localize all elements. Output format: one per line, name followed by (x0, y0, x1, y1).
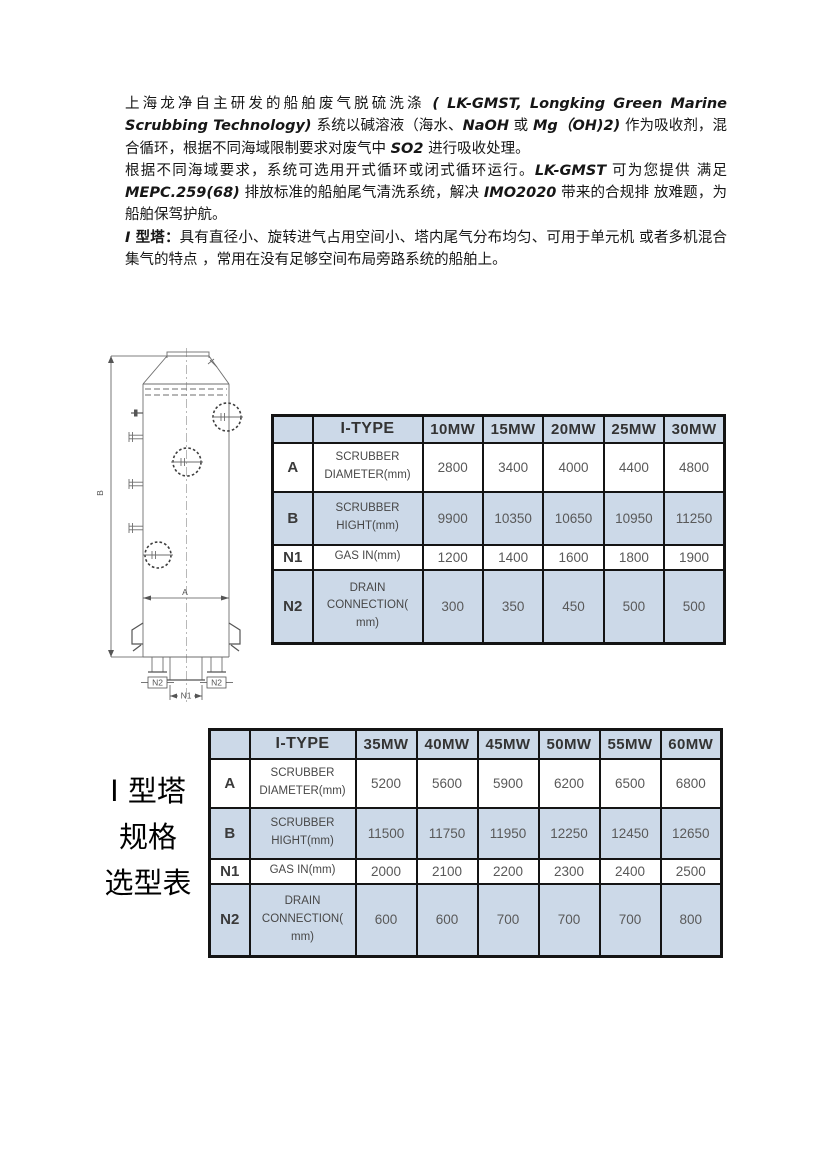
cell-value: 2200 (478, 859, 539, 884)
cell-value: 11500 (356, 808, 417, 859)
column-header-10mw: 10MW (423, 416, 483, 443)
corner-cell (273, 416, 313, 443)
spec-table-10-30mw: I-TYPE10MW15MW20MW25MW30MWASCRUBBER DIAM… (271, 414, 726, 645)
text-run: 型塔： (130, 230, 179, 246)
table-row-n1: N1GAS IN(mm)12001400160018001900 (273, 545, 725, 570)
cell-value: 6200 (539, 759, 600, 808)
text-run: 具有直径小、旋转进气占用空间小、塔内尾气分布均匀、可用于单元机 或者多机混合集气… (125, 230, 727, 268)
table-row-n2: N2DRAIN CONNECTION( mm)60060070070070080… (210, 884, 722, 957)
cell-value: 10650 (543, 492, 603, 545)
cell-value: 450 (543, 570, 603, 644)
row-label: N1 (210, 859, 250, 884)
cell-value: 1600 (543, 545, 603, 570)
cell-value: 1900 (664, 545, 724, 570)
cell-value: 10950 (604, 492, 664, 545)
cell-value: 2500 (661, 859, 722, 884)
document-page: 上海龙净自主研发的船舶废气脱硫洗涤 ( LK-GMST, Longking Gr… (0, 0, 830, 1174)
text-run: 排放标准的船舶尾气清洗系统，解决 (240, 185, 484, 201)
cell-value: 700 (600, 884, 661, 957)
cell-value: 12450 (600, 808, 661, 859)
nozzle-label-n1: N1 (181, 691, 192, 701)
section-title-line: 规格 (94, 814, 202, 860)
cell-value: 12650 (661, 808, 722, 859)
text-run: Mg（OH)2) (533, 118, 620, 134)
column-header-60mw: 60MW (661, 730, 722, 759)
column-header-15mw: 15MW (483, 416, 543, 443)
spec-table-35-60mw: I-TYPE35MW40MW45MW50MW55MW60MWASCRUBBER … (208, 728, 723, 958)
text-run: 可为您提供 满足 (606, 163, 727, 179)
cell-value: 1800 (604, 545, 664, 570)
section-title-line: I 型塔 (94, 768, 202, 814)
column-header-30mw: 30MW (664, 416, 724, 443)
cell-value: 12250 (539, 808, 600, 859)
row-name: SCRUBBER DIAMETER(mm) (313, 443, 423, 492)
cell-value: 4000 (543, 443, 603, 492)
column-header-50mw: 50MW (539, 730, 600, 759)
cell-value: 10350 (483, 492, 543, 545)
row-label: N2 (273, 570, 313, 644)
row-label: A (273, 443, 313, 492)
table-row-n2: N2DRAIN CONNECTION( mm)300350450500500 (273, 570, 725, 644)
text-run: 根据不同海域要求，系统可选用开式循环或闭式循环运行。 (125, 163, 535, 179)
row-name: DRAIN CONNECTION( mm) (313, 570, 423, 644)
cell-value: 700 (539, 884, 600, 957)
cell-value: 6500 (600, 759, 661, 808)
text-run: MEPC.259(68) (125, 185, 240, 201)
row-name: GAS IN(mm) (313, 545, 423, 570)
cell-value: 6800 (661, 759, 722, 808)
text-run: IMO2020 (484, 185, 557, 201)
scrubber-tower-drawing: B (95, 345, 250, 710)
table-row-b: BSCRUBBER HIGHT(mm)115001175011950122501… (210, 808, 722, 859)
column-header-55mw: 55MW (600, 730, 661, 759)
section-title: I 型塔 规格 选型表 (94, 768, 202, 906)
intro-text-block: 上海龙净自主研发的船舶废气脱硫洗涤 ( LK-GMST, Longking Gr… (125, 93, 727, 271)
dim-label-b: B (95, 490, 105, 496)
cell-value: 2400 (600, 859, 661, 884)
row-name: DRAIN CONNECTION( mm) (250, 884, 356, 957)
column-header-45mw: 45MW (478, 730, 539, 759)
paragraph-i-type: I 型塔：具有直径小、旋转进气占用空间小、塔内尾气分布均匀、可用于单元机 或者多… (125, 227, 727, 272)
text-run: 系统以碱溶液（海水、 (317, 118, 463, 134)
cell-value: 700 (478, 884, 539, 957)
cell-value: 1200 (423, 545, 483, 570)
cell-value: 600 (417, 884, 478, 957)
cell-value: 1400 (483, 545, 543, 570)
cell-value: 3400 (483, 443, 543, 492)
table-header-row: I-TYPE10MW15MW20MW25MW30MW (273, 416, 725, 443)
cell-value: 2800 (423, 443, 483, 492)
paragraph-overview: 上海龙净自主研发的船舶废气脱硫洗涤 ( LK-GMST, Longking Gr… (125, 93, 727, 160)
nozzle-label-n2-right: N2 (211, 678, 222, 688)
table-row-a: ASCRUBBER DIAMETER(mm)520056005900620065… (210, 759, 722, 808)
column-header-40mw: 40MW (417, 730, 478, 759)
table-header-row: I-TYPE35MW40MW45MW50MW55MW60MW (210, 730, 722, 759)
cell-value: 9900 (423, 492, 483, 545)
cell-value: 300 (423, 570, 483, 644)
cell-value: 350 (483, 570, 543, 644)
table-type-header: I-TYPE (250, 730, 356, 759)
row-name: GAS IN(mm) (250, 859, 356, 884)
text-run: 上海龙净自主研发的船舶废气脱硫洗涤 (125, 96, 432, 112)
column-header-20mw: 20MW (543, 416, 603, 443)
row-label: N1 (273, 545, 313, 570)
cell-value: 11750 (417, 808, 478, 859)
table-row-b: BSCRUBBER HIGHT(mm)990010350106501095011… (273, 492, 725, 545)
table-row-n1: N1GAS IN(mm)200021002200230024002500 (210, 859, 722, 884)
cell-value: 4400 (604, 443, 664, 492)
cell-value: 5900 (478, 759, 539, 808)
paragraph-operation: 根据不同海域要求，系统可选用开式循环或闭式循环运行。LK-GMST 可为您提供 … (125, 160, 727, 227)
row-name: SCRUBBER HIGHT(mm) (250, 808, 356, 859)
cell-value: 600 (356, 884, 417, 957)
text-run: SO2 (391, 141, 424, 157)
dim-label-a: A (182, 587, 188, 597)
cell-value: 2000 (356, 859, 417, 884)
text-run: 进行吸收处理。 (423, 141, 529, 157)
row-label: B (210, 808, 250, 859)
text-run: 或 (509, 118, 533, 134)
cell-value: 2100 (417, 859, 478, 884)
nozzle-label-n2-left: N2 (152, 678, 163, 688)
row-label: B (273, 492, 313, 545)
row-name: SCRUBBER HIGHT(mm) (313, 492, 423, 545)
cell-value: 2300 (539, 859, 600, 884)
cell-value: 500 (664, 570, 724, 644)
row-name: SCRUBBER DIAMETER(mm) (250, 759, 356, 808)
cell-value: 11950 (478, 808, 539, 859)
cell-value: 5200 (356, 759, 417, 808)
text-run: LK-GMST (535, 163, 606, 179)
column-header-35mw: 35MW (356, 730, 417, 759)
row-label: N2 (210, 884, 250, 957)
corner-cell (210, 730, 250, 759)
cell-value: 500 (604, 570, 664, 644)
cell-value: 11250 (664, 492, 724, 545)
cell-value: 800 (661, 884, 722, 957)
cell-value: 4800 (664, 443, 724, 492)
table-type-header: I-TYPE (313, 416, 423, 443)
column-header-25mw: 25MW (604, 416, 664, 443)
row-label: A (210, 759, 250, 808)
table-row-a: ASCRUBBER DIAMETER(mm)280034004000440048… (273, 443, 725, 492)
section-title-line: 选型表 (94, 860, 202, 906)
cell-value: 5600 (417, 759, 478, 808)
text-run: NaOH (463, 118, 509, 134)
